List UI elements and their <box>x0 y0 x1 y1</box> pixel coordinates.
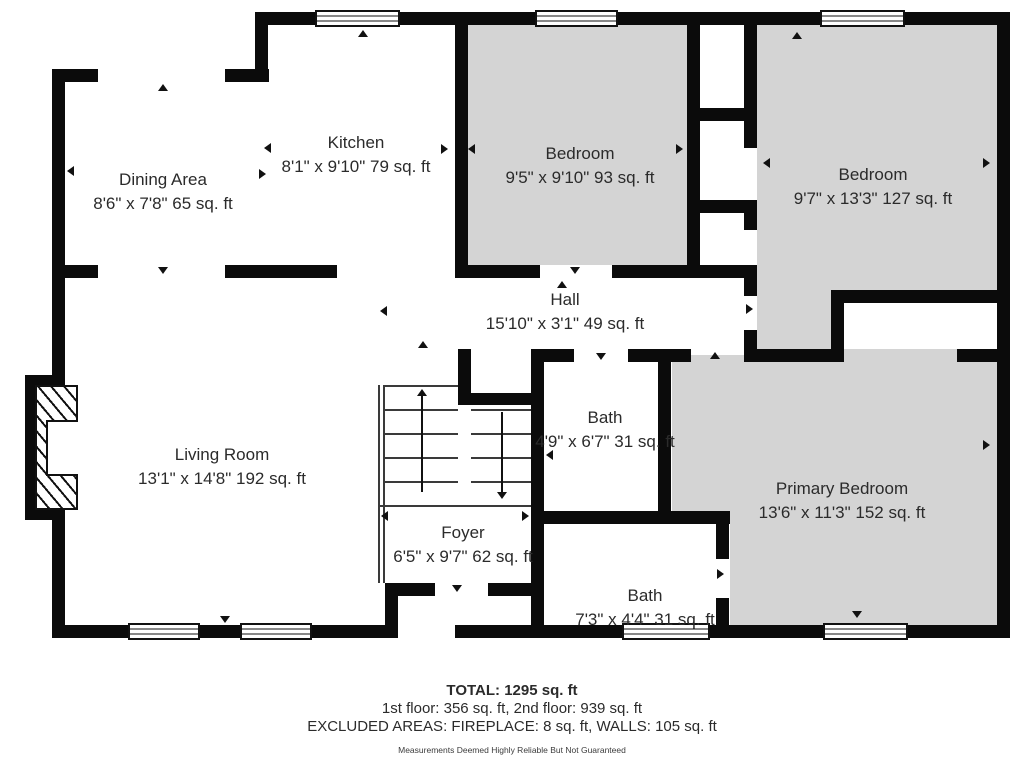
room-name: Dining Area <box>93 168 233 192</box>
stairs-down-arrow <box>501 412 503 492</box>
window-icon <box>315 10 400 27</box>
marker-icon <box>983 158 990 168</box>
marker-icon <box>983 440 990 450</box>
wall <box>612 265 757 278</box>
room-label-kitchen: Kitchen 8'1" x 9'10" 79 sq. ft <box>282 131 431 179</box>
wall <box>687 25 700 265</box>
marker-icon <box>67 166 74 176</box>
room-label-bedroom2: Bedroom 9'7" x 13'3" 127 sq. ft <box>794 163 952 211</box>
wall <box>997 12 1010 638</box>
room-label-bath2: Bath 7'3" x 4'4" 31 sq. ft <box>575 584 715 632</box>
wall <box>397 583 435 596</box>
marker-icon <box>441 144 448 154</box>
marker-icon <box>358 30 368 37</box>
total-area-text: TOTAL: 1295 sq. ft <box>0 682 1024 700</box>
room-name: Primary Bedroom <box>759 477 926 501</box>
area-summary: TOTAL: 1295 sq. ft 1st floor: 356 sq. ft… <box>0 682 1024 756</box>
room-name: Bath <box>575 584 715 608</box>
marker-icon <box>452 585 462 592</box>
marker-icon <box>418 341 428 348</box>
marker-icon <box>381 511 388 521</box>
wall <box>52 265 98 278</box>
room-dims: 8'6" x 7'8" 65 sq. ft <box>93 192 233 216</box>
wall <box>531 511 730 524</box>
marker-icon <box>220 616 230 623</box>
room-dims: 7'3" x 4'4" 31 sq. ft <box>575 608 715 632</box>
room-dims: 8'1" x 9'10" 79 sq. ft <box>282 155 431 179</box>
wall <box>831 290 997 303</box>
marker-icon <box>264 143 271 153</box>
marker-icon <box>158 84 168 91</box>
disclaimer-text: Measurements Deemed Highly Reliable But … <box>0 744 1024 756</box>
wall <box>52 69 65 384</box>
room-name: Living Room <box>138 443 306 467</box>
window-icon <box>535 10 618 27</box>
room-dims: 4'9" x 6'7" 31 sq. ft <box>535 430 675 454</box>
marker-icon <box>570 267 580 274</box>
wall <box>488 583 544 596</box>
room-dims: 9'5" x 9'10" 93 sq. ft <box>506 166 655 190</box>
room-label-hall: Hall 15'10" x 3'1" 49 sq. ft <box>486 288 644 336</box>
wall <box>744 25 757 120</box>
room-dims: 15'10" x 3'1" 49 sq. ft <box>486 312 644 336</box>
stair-railing <box>378 385 385 583</box>
room-label-dining: Dining Area 8'6" x 7'8" 65 sq. ft <box>93 168 233 216</box>
room-label-foyer: Foyer 6'5" x 9'7" 62 sq. ft <box>393 521 533 569</box>
room-name: Bedroom <box>794 163 952 187</box>
wall <box>225 265 337 278</box>
room-name: Hall <box>486 288 644 312</box>
wall <box>744 108 757 148</box>
window-icon <box>820 10 905 27</box>
marker-icon <box>557 281 567 288</box>
wall <box>744 200 757 230</box>
window-icon <box>823 623 908 640</box>
wall <box>716 511 729 559</box>
room-name: Foyer <box>393 521 533 545</box>
wall <box>455 25 468 278</box>
stairs-up-arrow <box>421 395 423 492</box>
wall <box>225 69 269 82</box>
wall <box>52 625 398 638</box>
firebox-icon <box>46 420 78 476</box>
stair-tread <box>385 385 458 387</box>
floor-plan: Dining Area 8'6" x 7'8" 65 sq. ft Kitche… <box>0 0 1024 768</box>
wall <box>385 583 398 638</box>
room-label-living: Living Room 13'1" x 14'8" 192 sq. ft <box>138 443 306 491</box>
wall <box>716 598 729 638</box>
wall <box>544 349 574 362</box>
wall <box>25 375 35 520</box>
room-dims: 6'5" x 9'7" 62 sq. ft <box>393 545 533 569</box>
excluded-areas-text: EXCLUDED AREAS: FIREPLACE: 8 sq. ft, WAL… <box>0 718 1024 736</box>
marker-icon <box>259 169 266 179</box>
wall <box>744 349 844 362</box>
wall <box>52 509 65 638</box>
room-dims: 13'6" x 11'3" 152 sq. ft <box>759 501 926 525</box>
marker-icon <box>792 32 802 39</box>
marker-icon <box>710 352 720 359</box>
room-label-bath1: Bath 4'9" x 6'7" 31 sq. ft <box>535 406 675 454</box>
window-icon <box>128 623 200 640</box>
marker-icon <box>522 511 529 521</box>
closet-floor <box>844 303 997 349</box>
wall <box>25 510 65 520</box>
marker-icon <box>596 353 606 360</box>
room-name: Bedroom <box>506 142 655 166</box>
room-label-primary: Primary Bedroom 13'6" x 11'3" 152 sq. ft <box>759 477 926 525</box>
wall <box>628 349 658 362</box>
marker-icon <box>746 304 753 314</box>
wall <box>744 278 757 296</box>
room-label-bedroom1: Bedroom 9'5" x 9'10" 93 sq. ft <box>506 142 655 190</box>
floor-areas-text: 1st floor: 356 sq. ft, 2nd floor: 939 sq… <box>0 700 1024 718</box>
marker-icon <box>676 144 683 154</box>
wall <box>455 265 540 278</box>
marker-icon <box>380 306 387 316</box>
marker-icon <box>468 144 475 154</box>
marker-icon <box>763 158 770 168</box>
window-icon <box>240 623 312 640</box>
wall <box>957 349 997 362</box>
stair-tread <box>471 409 531 411</box>
stair-landing-line <box>380 505 531 507</box>
wall <box>658 349 691 362</box>
room-name: Bath <box>535 406 675 430</box>
marker-icon <box>852 611 862 618</box>
room-dims: 13'1" x 14'8" 192 sq. ft <box>138 467 306 491</box>
marker-icon <box>158 267 168 274</box>
room-dims: 9'7" x 13'3" 127 sq. ft <box>794 187 952 211</box>
stairs-down-arrowhead <box>497 492 507 499</box>
marker-icon <box>717 569 724 579</box>
room-name: Kitchen <box>282 131 431 155</box>
stairs-up-arrowhead <box>417 389 427 396</box>
